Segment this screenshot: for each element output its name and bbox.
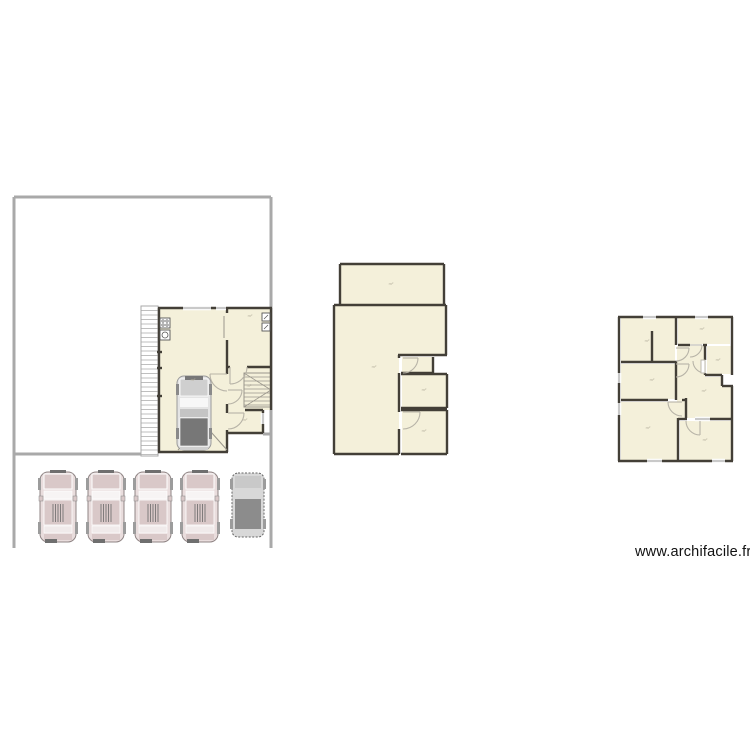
van-wheel bbox=[230, 519, 233, 529]
car-front-bumper bbox=[50, 470, 66, 473]
room-main-b bbox=[334, 355, 399, 454]
car-front-bumper bbox=[192, 470, 208, 473]
car-wheel bbox=[217, 478, 220, 490]
car-rear-bumper bbox=[187, 539, 199, 543]
garage-car-cabin bbox=[180, 409, 208, 417]
car-wheel bbox=[38, 478, 41, 490]
floorplan-page: m²m²m²m²m²m²m²m²m²m²m²m²m²m²m² www.archi… bbox=[0, 0, 750, 750]
car-mirror-right bbox=[73, 496, 77, 501]
room-area-label: m² bbox=[422, 428, 427, 433]
garage-car-wheel bbox=[176, 384, 179, 395]
car-wheel bbox=[133, 478, 136, 490]
staircase bbox=[244, 373, 271, 407]
room-area-label: m² bbox=[243, 417, 248, 422]
car-suv bbox=[86, 470, 126, 543]
van-hood bbox=[235, 476, 261, 488]
car-hood bbox=[92, 474, 120, 489]
room-bottom-left bbox=[621, 402, 678, 460]
room-main-a bbox=[334, 305, 446, 355]
car-rear-window bbox=[92, 526, 120, 533]
washer-icon bbox=[160, 330, 170, 340]
plan-upper-level: m²m²m²m²m²m²m² bbox=[618, 317, 734, 461]
garage-car-windshield bbox=[180, 398, 208, 407]
parked-cars bbox=[38, 470, 266, 543]
van-wheel bbox=[230, 479, 233, 489]
room-area-label: m² bbox=[372, 364, 377, 369]
plan-middle-level: m²m²m²m² bbox=[334, 264, 447, 454]
car-rear-window bbox=[186, 526, 214, 533]
garage-car-wheel bbox=[176, 428, 179, 439]
room-area-label: m² bbox=[646, 425, 651, 430]
hob-icon bbox=[160, 318, 170, 328]
car-mirror-left bbox=[87, 496, 91, 501]
van-roof bbox=[235, 499, 261, 529]
car-wheel bbox=[170, 478, 173, 490]
room-area-label: m² bbox=[716, 357, 721, 362]
room-area-label: m² bbox=[702, 388, 707, 393]
car-suv bbox=[180, 470, 220, 543]
car-wheel bbox=[133, 522, 136, 534]
car-mirror-left bbox=[181, 496, 185, 501]
car-windshield bbox=[186, 491, 214, 499]
car-wheel bbox=[180, 478, 183, 490]
car-wheel bbox=[170, 522, 173, 534]
car-rear-bumper bbox=[45, 539, 57, 543]
car-hood bbox=[44, 474, 72, 489]
car-windshield bbox=[44, 491, 72, 499]
watermark-text: www.archifacile.fr bbox=[635, 544, 750, 560]
garage-car-wheel bbox=[209, 428, 212, 439]
car-wheel bbox=[123, 522, 126, 534]
room-area-label: m² bbox=[700, 326, 705, 331]
car-rear-window bbox=[139, 526, 167, 533]
car-wheel bbox=[180, 522, 183, 534]
van-wheel bbox=[263, 479, 266, 489]
room-area-label: m² bbox=[650, 377, 655, 382]
car-front-bumper bbox=[145, 470, 161, 473]
car-wheel bbox=[75, 478, 78, 490]
car-windshield bbox=[92, 491, 120, 499]
car-wheel bbox=[38, 522, 41, 534]
room-top-right bbox=[678, 318, 730, 344]
car-rear-bumper bbox=[140, 539, 152, 543]
car-suv bbox=[133, 470, 173, 543]
car-mirror-right bbox=[215, 496, 219, 501]
car-rear-window bbox=[44, 526, 72, 533]
room-mid-left bbox=[621, 364, 675, 399]
car-mirror-right bbox=[121, 496, 125, 501]
room-area-label: m² bbox=[422, 387, 427, 392]
car-wheel bbox=[75, 522, 78, 534]
garage-car-rear bbox=[180, 447, 208, 450]
room-area-label: m² bbox=[703, 437, 708, 442]
door-leaf-panel bbox=[701, 360, 705, 373]
car-mirror-left bbox=[39, 496, 43, 501]
car-wheel bbox=[86, 522, 89, 534]
car-front-bumper bbox=[98, 470, 114, 473]
car-rear-bumper bbox=[93, 539, 105, 543]
car-wheel bbox=[86, 478, 89, 490]
room-area-label: m² bbox=[645, 338, 650, 343]
room-area-label: m² bbox=[247, 383, 252, 388]
car-wheel bbox=[123, 478, 126, 490]
car-mirror-right bbox=[168, 496, 172, 501]
room-area-label: m² bbox=[248, 313, 253, 318]
room-area-label: m² bbox=[191, 377, 196, 382]
car-gray-van bbox=[230, 473, 266, 537]
room-area-label: m² bbox=[389, 281, 394, 286]
garage-car-wheel bbox=[209, 384, 212, 395]
car-windshield bbox=[139, 491, 167, 499]
void bbox=[722, 375, 734, 386]
car-hood bbox=[139, 474, 167, 489]
floorplan-canvas: m²m²m²m²m²m²m²m²m²m²m²m²m²m²m² bbox=[0, 0, 750, 750]
car-mirror-left bbox=[134, 496, 138, 501]
van-wheel bbox=[263, 519, 266, 529]
car-wheel bbox=[217, 522, 220, 534]
car-hood bbox=[186, 474, 214, 489]
garage-car-roof bbox=[180, 418, 208, 446]
car-suv bbox=[38, 470, 78, 543]
